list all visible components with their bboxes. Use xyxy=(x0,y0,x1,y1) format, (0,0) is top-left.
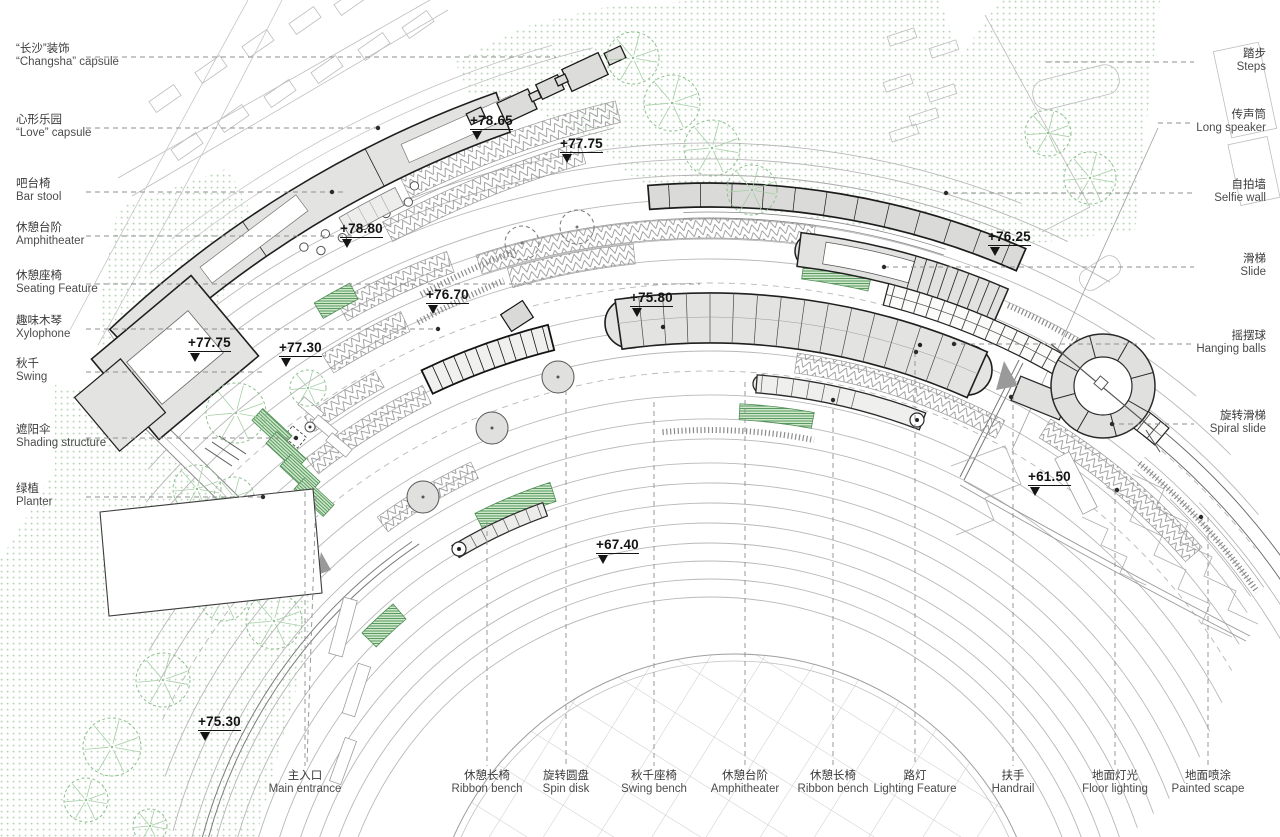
bottom-label-lighting-feature-6-zh: 路灯 xyxy=(873,770,956,783)
left-label-bar-stool-zh: 吧台椅 xyxy=(16,178,61,191)
right-label-steps: 踏步Steps xyxy=(1237,48,1266,74)
bottom-label-swing-bench-3-zh: 秋千座椅 xyxy=(621,770,687,783)
xylophone-bench xyxy=(422,301,555,394)
right-label-long-speaker-zh: 传声筒 xyxy=(1196,109,1266,122)
right-label-selfie-wall-zh: 自拍墙 xyxy=(1214,179,1266,192)
left-label-xylophone-zh: 趣味木琴 xyxy=(16,315,70,328)
left-label-love-capsule: 心形乐园“Love” capsule xyxy=(16,114,91,140)
bottom-label-lighting-feature-6: 路灯Lighting Feature xyxy=(873,770,956,796)
elevation-triangle-icon xyxy=(472,131,482,140)
bottom-label-lighting-feature-6-en: Lighting Feature xyxy=(873,783,956,796)
elevation-marker-1: +77.75 xyxy=(560,135,603,163)
bottom-label-spin-disk-2-zh: 旋转圆盘 xyxy=(543,770,590,783)
bottom-label-amphitheater-4-en: Amphitheater xyxy=(711,783,779,796)
elevation-triangle-icon xyxy=(200,732,210,741)
left-label-love-capsule-en: “Love” capsule xyxy=(16,127,91,140)
elevation-value: +75.30 xyxy=(198,714,241,731)
right-label-spiral-slide: 旋转滑梯Spiral slide xyxy=(1210,410,1266,436)
bottom-label-main-entrance-0-zh: 主入口 xyxy=(269,770,342,783)
elevation-marker-6: +77.75 xyxy=(188,334,231,362)
elevation-value: +75.80 xyxy=(630,290,673,307)
right-label-selfie-wall: 自拍墙Selfie wall xyxy=(1214,179,1266,205)
bottom-label-main-entrance-0: 主入口Main entrance xyxy=(269,770,342,796)
right-label-spiral-slide-en: Spiral slide xyxy=(1210,423,1266,436)
elevation-marker-3: +76.25 xyxy=(988,228,1031,256)
elevation-marker-5: +75.80 xyxy=(630,289,673,317)
elevation-triangle-icon xyxy=(1030,487,1040,496)
elevation-triangle-icon xyxy=(190,353,200,362)
elevation-triangle-icon xyxy=(598,555,608,564)
grid-plaza xyxy=(427,654,1043,837)
elevation-value: +77.30 xyxy=(279,340,322,357)
bottom-label-amphitheater-4-zh: 休憩台阶 xyxy=(711,770,779,783)
left-label-changsha-capsule-zh: “长沙”装饰 xyxy=(16,43,119,56)
elevation-value: +76.70 xyxy=(426,287,469,304)
left-label-planter-zh: 绿植 xyxy=(16,483,52,496)
left-label-amphitheater-zh: 休憩台阶 xyxy=(16,222,84,235)
left-label-changsha-capsule: “长沙”装饰“Changsha” capsule xyxy=(16,43,119,69)
bottom-label-main-entrance-0-en: Main entrance xyxy=(269,783,342,796)
left-label-seating-feature: 休憩座椅Seating Feature xyxy=(16,270,98,296)
left-label-amphitheater: 休憩台阶Amphitheater xyxy=(16,222,84,248)
left-label-swing-en: Swing xyxy=(16,371,47,384)
elevation-triangle-icon xyxy=(428,305,438,314)
bottom-label-ribbon-bench-5-en: Ribbon bench xyxy=(798,783,869,796)
bottom-label-swing-bench-3: 秋千座椅Swing bench xyxy=(621,770,687,796)
bottom-label-painted-scape-9-en: Painted scape xyxy=(1172,783,1245,796)
right-label-spiral-slide-zh: 旋转滑梯 xyxy=(1210,410,1266,423)
elevation-value: +76.25 xyxy=(988,229,1031,246)
elevation-marker-9: +67.40 xyxy=(596,536,639,564)
left-label-shading-structure-zh: 遮阳伞 xyxy=(16,424,106,437)
elevation-marker-0: +78.65 xyxy=(470,112,513,140)
right-label-slide-zh: 滑梯 xyxy=(1240,253,1266,266)
left-label-xylophone: 趣味木琴Xylophone xyxy=(16,315,70,341)
right-label-long-speaker-en: Long speaker xyxy=(1196,122,1266,135)
right-label-hanging-balls-zh: 摇摆球 xyxy=(1196,330,1266,343)
site-plan-drawing xyxy=(0,0,1280,837)
elevation-marker-7: +77.30 xyxy=(279,339,322,367)
left-label-bar-stool-en: Bar stool xyxy=(16,191,61,204)
elevation-triangle-icon xyxy=(632,308,642,317)
bottom-label-handrail-7-zh: 扶手 xyxy=(992,770,1035,783)
bottom-label-handrail-7: 扶手Handrail xyxy=(992,770,1035,796)
bottom-label-swing-bench-3-en: Swing bench xyxy=(621,783,687,796)
bottom-label-floor-lighting-8-zh: 地面灯光 xyxy=(1082,770,1148,783)
site-plan: “长沙”装饰“Changsha” capsule心形乐园“Love” capsu… xyxy=(0,0,1280,837)
bottom-label-spin-disk-2-en: Spin disk xyxy=(543,783,590,796)
right-label-steps-en: Steps xyxy=(1237,61,1266,74)
elevation-value: +77.75 xyxy=(188,335,231,352)
bottom-label-painted-scape-9: 地面喷涂Painted scape xyxy=(1172,770,1245,796)
right-label-slide-en: Slide xyxy=(1240,266,1266,279)
left-label-xylophone-en: Xylophone xyxy=(16,328,70,341)
bottom-label-ribbon-bench-5-zh: 休憩长椅 xyxy=(798,770,869,783)
elevation-value: +77.75 xyxy=(560,136,603,153)
right-label-long-speaker: 传声筒Long speaker xyxy=(1196,109,1266,135)
elevation-marker-8: +61.50 xyxy=(1028,468,1071,496)
left-label-seating-feature-zh: 休憩座椅 xyxy=(16,270,98,283)
left-label-changsha-capsule-en: “Changsha” capsule xyxy=(16,56,119,69)
elevation-triangle-icon xyxy=(281,358,291,367)
bottom-label-ribbon-bench-1-zh: 休憩长椅 xyxy=(452,770,523,783)
elevation-value: +78.80 xyxy=(340,221,383,238)
elevation-triangle-icon xyxy=(342,239,352,248)
elevation-value: +78.65 xyxy=(470,113,513,130)
elevation-marker-10: +75.30 xyxy=(198,713,241,741)
right-label-steps-zh: 踏步 xyxy=(1237,48,1266,61)
bottom-label-handrail-7-en: Handrail xyxy=(992,783,1035,796)
left-label-shading-structure-en: Shading structure xyxy=(16,437,106,450)
right-label-selfie-wall-en: Selfie wall xyxy=(1214,192,1266,205)
elevation-value: +61.50 xyxy=(1028,469,1071,486)
elevation-value: +67.40 xyxy=(596,537,639,554)
left-label-amphitheater-en: Amphitheater xyxy=(16,235,84,248)
bottom-label-spin-disk-2: 旋转圆盘Spin disk xyxy=(543,770,590,796)
right-label-hanging-balls: 摇摆球Hanging balls xyxy=(1196,330,1266,356)
elevation-marker-2: +78.80 xyxy=(340,220,383,248)
left-label-planter-en: Planter xyxy=(16,496,52,509)
bottom-label-floor-lighting-8: 地面灯光Floor lighting xyxy=(1082,770,1148,796)
elevation-triangle-icon xyxy=(990,247,1000,256)
elevation-marker-4: +76.70 xyxy=(426,286,469,314)
elevation-triangle-icon xyxy=(562,154,572,163)
left-label-seating-feature-en: Seating Feature xyxy=(16,283,98,296)
left-label-swing: 秋千Swing xyxy=(16,358,47,384)
left-label-shading-structure: 遮阳伞Shading structure xyxy=(16,424,106,450)
right-label-slide: 滑梯Slide xyxy=(1240,253,1266,279)
bottom-label-painted-scape-9-zh: 地面喷涂 xyxy=(1172,770,1245,783)
bottom-label-amphitheater-4: 休憩台阶Amphitheater xyxy=(711,770,779,796)
bottom-label-ribbon-bench-1: 休憩长椅Ribbon bench xyxy=(452,770,523,796)
bottom-label-ribbon-bench-1-en: Ribbon bench xyxy=(452,783,523,796)
left-label-swing-zh: 秋千 xyxy=(16,358,47,371)
left-label-planter: 绿植Planter xyxy=(16,483,52,509)
bottom-label-floor-lighting-8-en: Floor lighting xyxy=(1082,783,1148,796)
left-label-bar-stool: 吧台椅Bar stool xyxy=(16,178,61,204)
tree xyxy=(206,383,266,443)
bottom-label-ribbon-bench-5: 休憩长椅Ribbon bench xyxy=(798,770,869,796)
left-label-love-capsule-zh: 心形乐园 xyxy=(16,114,91,127)
right-label-hanging-balls-en: Hanging balls xyxy=(1196,343,1266,356)
